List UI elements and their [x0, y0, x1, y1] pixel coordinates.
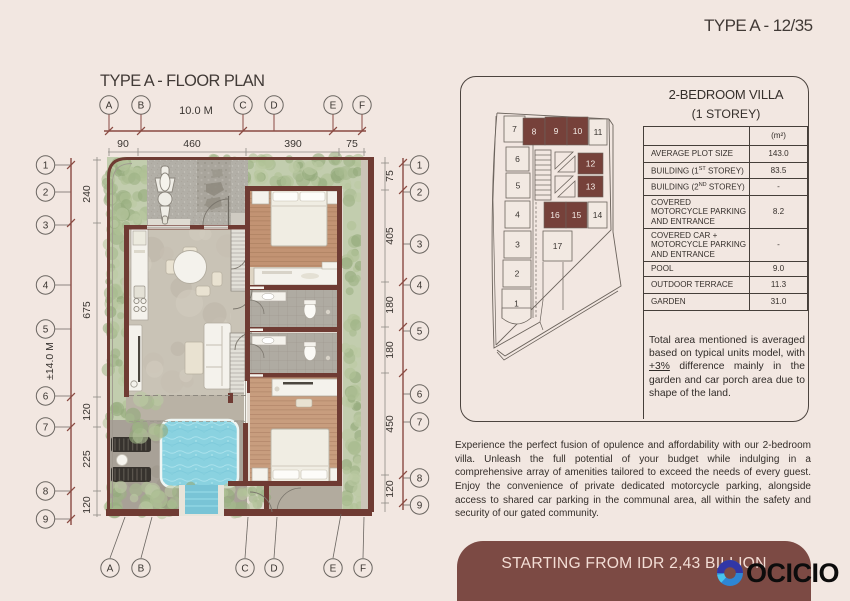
svg-text:10.0 M: 10.0 M — [179, 105, 213, 117]
svg-text:3: 3 — [43, 220, 49, 231]
svg-text:1: 1 — [417, 160, 423, 171]
svg-text:90: 90 — [117, 138, 129, 150]
svg-text:120: 120 — [384, 480, 396, 498]
svg-text:2: 2 — [417, 187, 423, 198]
svg-text:E: E — [330, 563, 337, 574]
svg-text:180: 180 — [384, 296, 396, 314]
svg-text:B: B — [138, 563, 145, 574]
svg-text:240: 240 — [81, 185, 93, 203]
svg-text:405: 405 — [384, 227, 396, 245]
svg-text:180: 180 — [384, 341, 396, 359]
svg-text:A: A — [106, 100, 113, 111]
svg-text:8: 8 — [43, 486, 49, 497]
svg-text:75: 75 — [384, 170, 396, 182]
svg-text:D: D — [270, 100, 277, 111]
svg-text:7: 7 — [43, 422, 49, 433]
svg-text:3: 3 — [417, 239, 423, 250]
svg-text:9: 9 — [43, 514, 49, 525]
svg-text:C: C — [241, 563, 248, 574]
svg-text:4: 4 — [417, 280, 423, 291]
svg-text:±14.0 M: ±14.0 M — [44, 342, 56, 380]
svg-text:2: 2 — [43, 187, 49, 198]
svg-text:9: 9 — [417, 500, 423, 511]
svg-text:4: 4 — [43, 280, 49, 291]
svg-text:5: 5 — [417, 326, 423, 337]
svg-text:120: 120 — [81, 403, 93, 421]
svg-text:225: 225 — [81, 450, 93, 468]
svg-text:B: B — [138, 100, 145, 111]
svg-text:F: F — [360, 563, 366, 574]
svg-text:C: C — [239, 100, 246, 111]
svg-text:450: 450 — [384, 415, 396, 433]
svg-text:7: 7 — [417, 417, 423, 428]
svg-text:390: 390 — [284, 138, 302, 150]
svg-text:120: 120 — [81, 496, 93, 514]
svg-text:D: D — [270, 563, 277, 574]
svg-text:A: A — [107, 563, 114, 574]
svg-text:E: E — [330, 100, 337, 111]
svg-text:5: 5 — [43, 324, 49, 335]
svg-text:8: 8 — [417, 473, 423, 484]
svg-text:F: F — [359, 100, 365, 111]
svg-text:675: 675 — [81, 301, 93, 319]
svg-text:75: 75 — [346, 138, 358, 150]
svg-text:460: 460 — [183, 138, 201, 150]
svg-text:1: 1 — [43, 160, 49, 171]
svg-text:6: 6 — [43, 391, 49, 402]
svg-text:6: 6 — [417, 389, 423, 400]
